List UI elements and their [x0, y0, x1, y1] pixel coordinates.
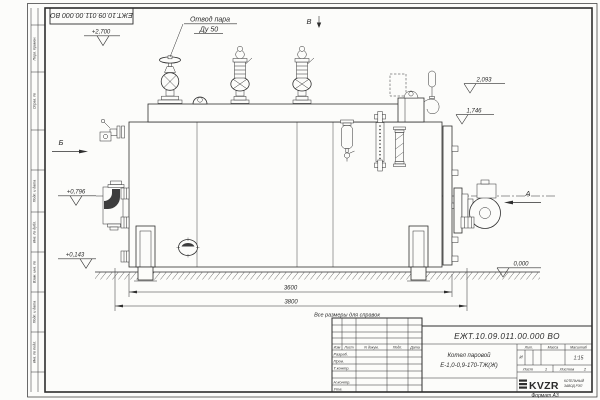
row-prov: Пров. [334, 358, 345, 363]
margin-label-vzam-inv: Взам. инв. № [33, 261, 37, 283]
product-name-2: Е-1,0-0,9-170-ТЖ(Ж) [440, 363, 497, 369]
margin-label-perv-primen: Перв. примен. [33, 37, 37, 61]
boiler-drawing-svg: Перв. примен. Справ. № Подп. и дата Инв.… [0, 0, 600, 400]
mass-header: Масса [548, 346, 559, 350]
elevation-plus-2700: +2,700 [84, 30, 120, 46]
company-line-1: КОТЕЛЬНЫЙ [564, 379, 585, 383]
format-note: Формат А3 [531, 393, 559, 399]
titleblock-designation: ЕЖТ.10.09.011.00.000 ВО [454, 332, 560, 341]
sheet-label: Лист [522, 366, 534, 371]
logo-text: KVZR [529, 380, 559, 392]
margin-label-inv-podl: Инв. № подл. [33, 341, 37, 363]
ground-line [95, 272, 540, 280]
col-list: Лист [343, 346, 353, 350]
elevation-text: +0,143 [66, 253, 85, 259]
burner-motor-box [477, 184, 496, 198]
scale-header: Масштаб [570, 346, 588, 350]
steam-outlet-leader [170, 24, 183, 57]
drawing-sheet: Перв. примен. Справ. № Подп. и дата Инв.… [0, 0, 600, 400]
sheets-value: 2 [583, 366, 587, 371]
burner [454, 180, 501, 233]
dimension-text: 3800 [284, 300, 298, 306]
row-tkontr: Т.контр. [334, 365, 350, 370]
steam-outlet-label-2: Ду 50 [199, 27, 218, 34]
safety-valve-1 [231, 46, 252, 103]
sheets-label: Листов [559, 366, 575, 371]
elevation-text: 1,746 [466, 109, 482, 115]
row-nkontr: Н.контр. [334, 379, 351, 384]
margin-label-inv-dubl: Инв. № дубл. [33, 221, 37, 243]
elevation-1746: 1,746 [456, 109, 494, 125]
dimension-text: 3600 [284, 286, 298, 292]
margin-label-podp-data-1: Подп. и дата [33, 180, 37, 203]
row-razrab: Разраб. [334, 351, 348, 356]
product-name-1: Котел паровой [447, 352, 491, 359]
steam-outlet-label-1: Отвод пара [190, 16, 230, 24]
elevation-2093: 2,093 [464, 78, 505, 94]
elevation-text: +2,700 [92, 30, 111, 36]
elevation-text: 0,000 [513, 262, 529, 268]
safety-valve-2 [293, 46, 314, 103]
margin-label-podp-data-2: Подп. и дата [33, 301, 37, 324]
margin-label-sprav: Справ. № [33, 93, 37, 109]
sensor [429, 71, 436, 87]
lifting-lug [193, 97, 207, 104]
company-logo: KVZR КОТЕЛЬНЫЙ ЗАВОД РЭП [519, 379, 585, 392]
elevation-plus-0796: +0,796 [58, 190, 96, 206]
col-dokum: N докум. [364, 346, 379, 350]
left-nozzles [121, 188, 129, 262]
view-label-b: Б [59, 138, 64, 147]
elevation-plus-0143: +0,143 [58, 253, 96, 269]
row-utv: Утв. [334, 386, 343, 391]
steam-outlet-valve [158, 56, 182, 104]
title-block: ЕЖТ.10.09.011.00.000 ВО Изм Лист N докум… [332, 318, 592, 392]
sheet-value: 1 [545, 366, 547, 371]
lit-value: И [519, 355, 523, 360]
view-label-v: В [306, 17, 311, 26]
burner-fin-box [461, 217, 474, 228]
top-designation-text: ЕЖТ.10.09.011.00.000 ВО [50, 11, 133, 18]
elevation-text: +0,796 [67, 190, 86, 196]
view-label-a: А [524, 189, 530, 198]
left-wall-bracket [100, 132, 111, 141]
boiler-shell [129, 122, 442, 267]
hidden-outline [390, 74, 406, 96]
col-data: Дата [409, 346, 419, 350]
scale-value: 1:15 [574, 356, 584, 362]
cable-loop [424, 99, 439, 114]
company-line-2: ЗАВОД РЭП [564, 384, 583, 388]
col-izm: Изм [334, 346, 341, 350]
elevation-text: 2,093 [475, 78, 492, 84]
col-podp: Подп. [393, 346, 403, 350]
lit-header: Лит. [524, 346, 533, 350]
